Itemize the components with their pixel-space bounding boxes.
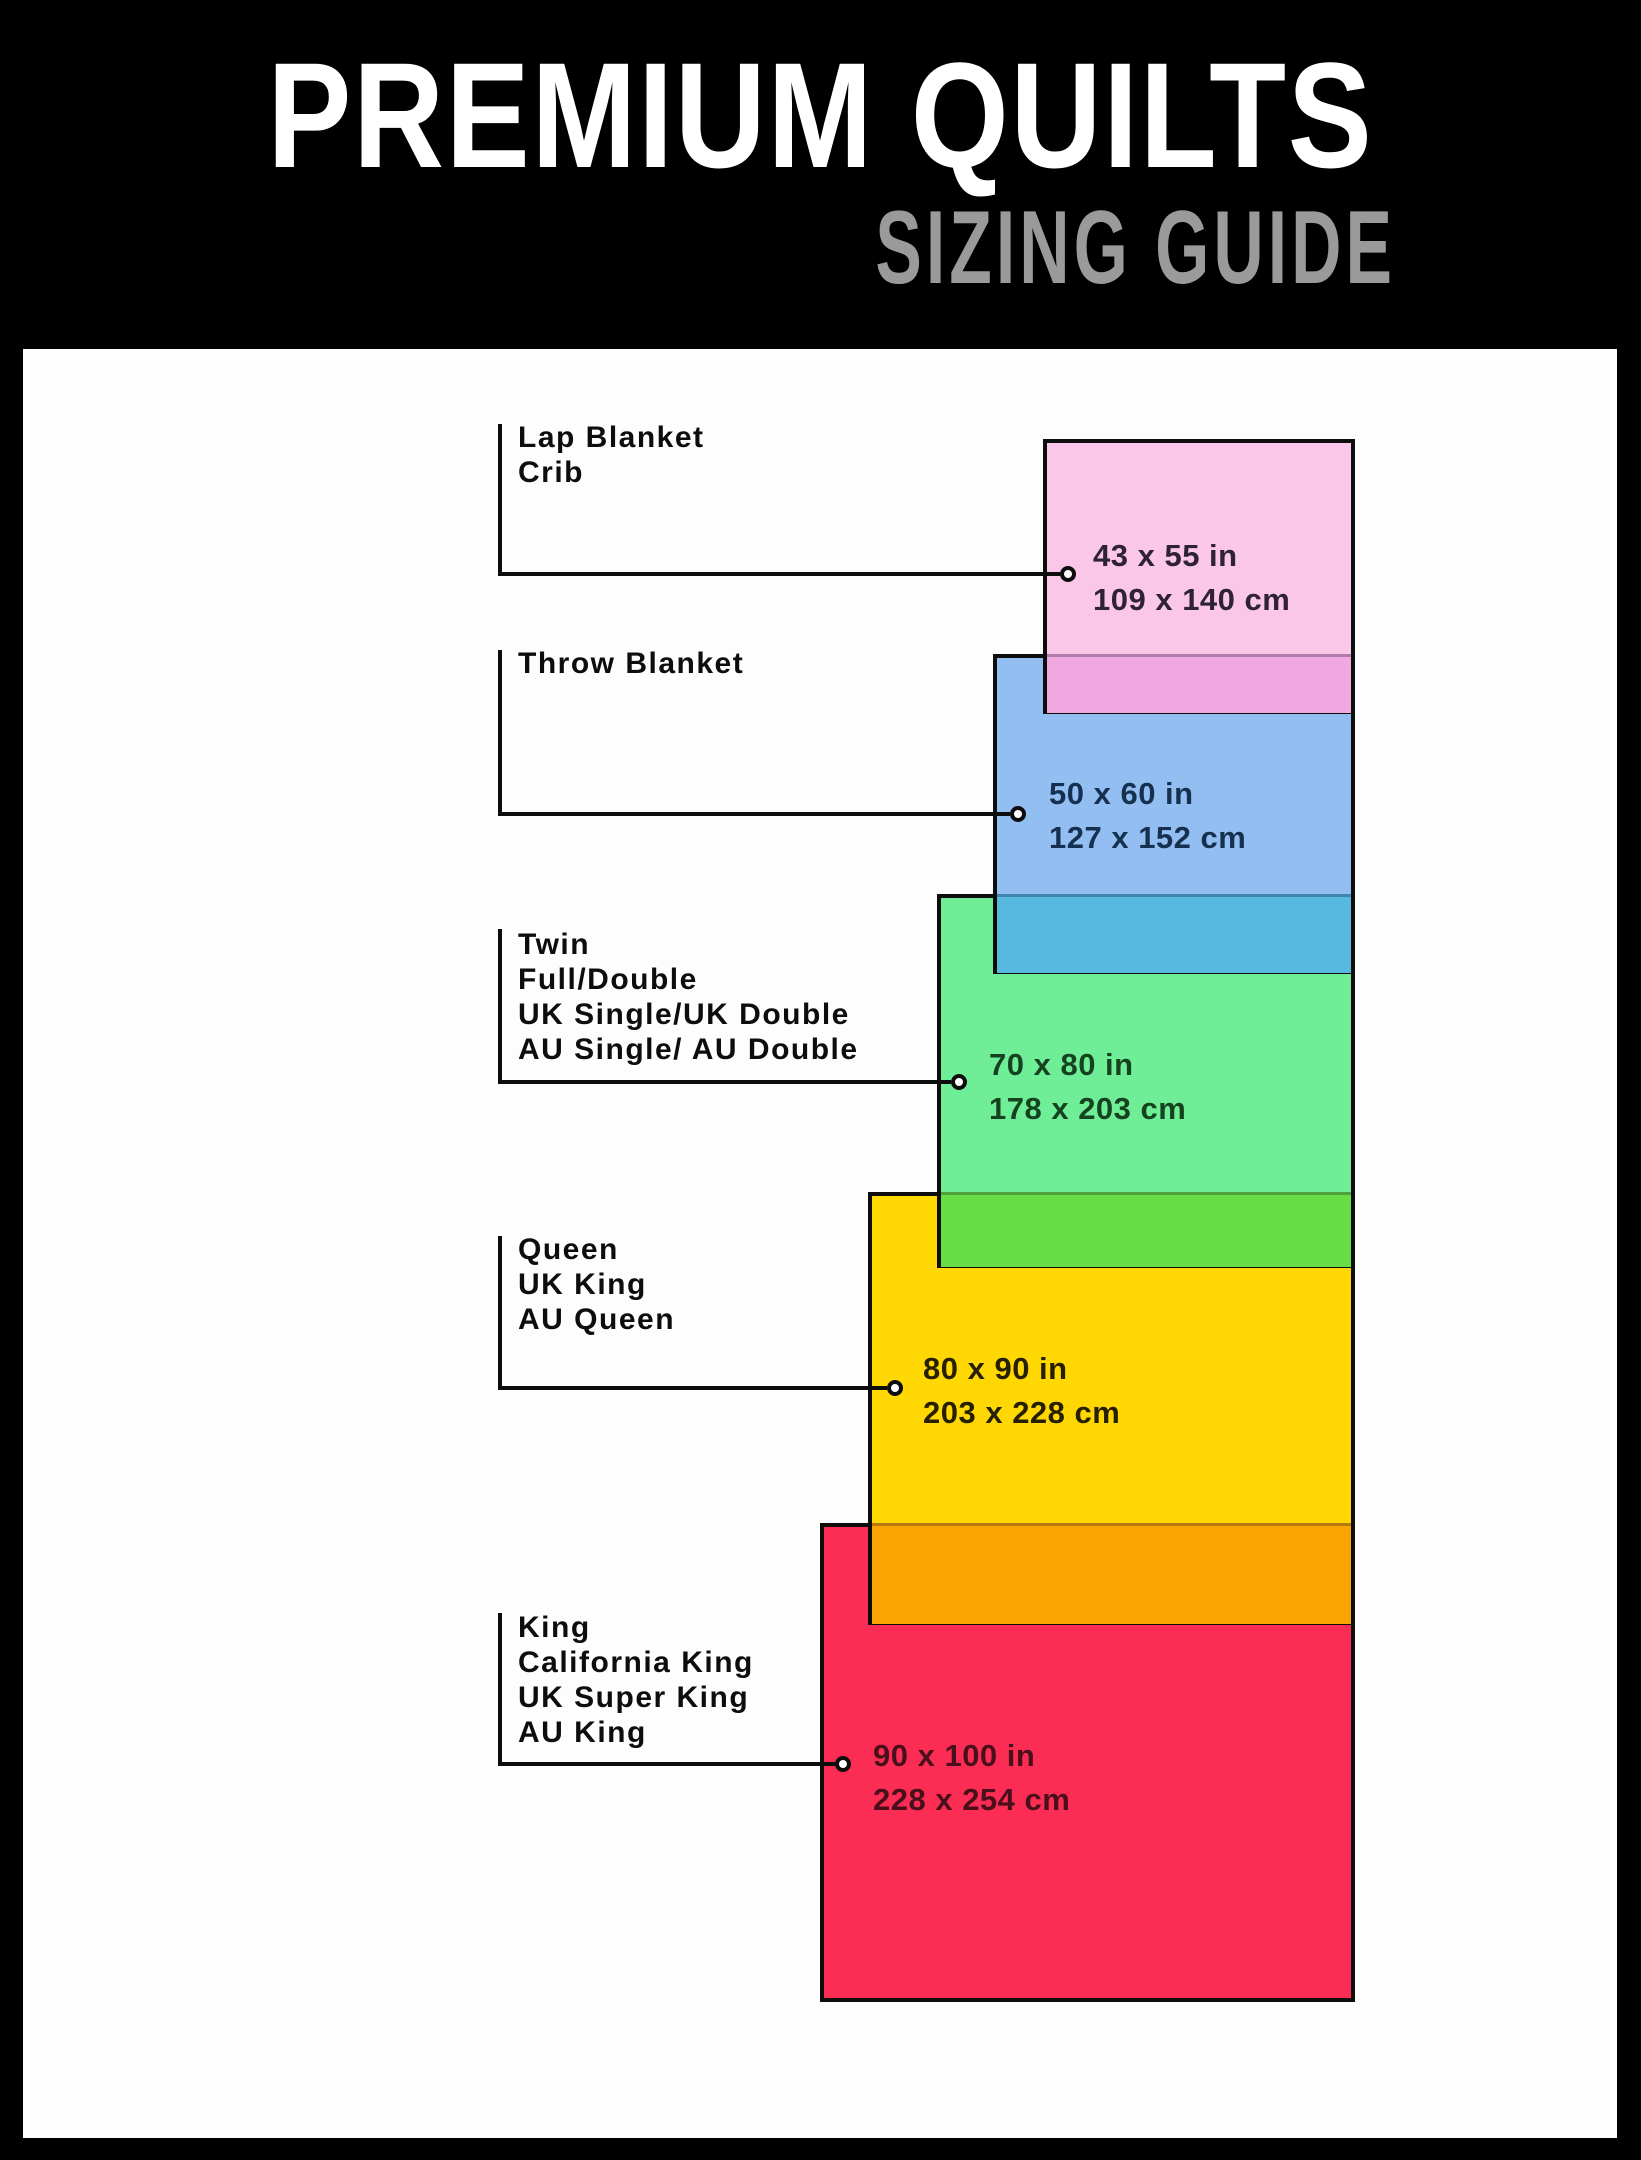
page-subtitle: SIZING GUIDE: [619, 196, 1396, 300]
connector-vline-lap: [498, 424, 502, 576]
connector-hline-twin: [498, 1080, 951, 1084]
dimensions-throw: 50 x 60 in 127 x 152 cm: [1049, 772, 1246, 860]
label-line: Queen: [518, 1232, 675, 1267]
size-labels-queen: Queen UK King AU Queen: [518, 1232, 675, 1337]
connector-vline-twin: [498, 929, 502, 1084]
overlap-band-queen-king: [872, 1523, 1351, 1624]
connector-hline-king: [498, 1762, 835, 1766]
header-band: PREMIUM QUILTS SIZING GUIDE: [0, 0, 1641, 349]
dimension-inches: 70 x 80 in: [989, 1043, 1186, 1087]
label-line: UK Single/UK Double: [518, 997, 859, 1032]
label-line: AU King: [518, 1715, 754, 1750]
dimensions-lap: 43 x 55 in 109 x 140 cm: [1093, 534, 1290, 622]
connector-dot-twin: [951, 1074, 967, 1090]
dimension-cm: 127 x 152 cm: [1049, 816, 1246, 860]
overlap-band-lap-throw: [1047, 654, 1351, 713]
size-labels-king: King California King UK Super King AU Ki…: [518, 1610, 754, 1750]
size-labels-lap: Lap Blanket Crib: [518, 420, 705, 490]
page-subtitle-text: SIZING GUIDE: [875, 196, 1396, 300]
connector-vline-throw: [498, 650, 502, 816]
connector-dot-king: [835, 1756, 851, 1772]
connector-vline-king: [498, 1613, 502, 1766]
label-line: Twin: [518, 927, 859, 962]
label-line: UK Super King: [518, 1680, 754, 1715]
dimension-cm: 178 x 203 cm: [989, 1087, 1186, 1131]
label-line: Crib: [518, 455, 705, 490]
connector-dot-lap: [1060, 566, 1076, 582]
label-line: California King: [518, 1645, 754, 1680]
label-line: Throw Blanket: [518, 646, 744, 681]
page-title: PREMIUM QUILTS: [0, 40, 1641, 190]
label-line: AU Queen: [518, 1302, 675, 1337]
connector-vline-queen: [498, 1236, 502, 1390]
connector-hline-throw: [498, 812, 1010, 816]
connector-dot-throw: [1010, 806, 1026, 822]
dimension-cm: 109 x 140 cm: [1093, 578, 1290, 622]
dimensions-king: 90 x 100 in 228 x 254 cm: [873, 1734, 1070, 1822]
page-title-text: PREMIUM QUILTS: [267, 40, 1373, 190]
connector-hline-queen: [498, 1386, 887, 1390]
label-line: UK King: [518, 1267, 675, 1302]
dimensions-queen: 80 x 90 in 203 x 228 cm: [923, 1347, 1120, 1435]
dimension-inches: 50 x 60 in: [1049, 772, 1246, 816]
dimension-inches: 80 x 90 in: [923, 1347, 1120, 1391]
dimension-cm: 228 x 254 cm: [873, 1778, 1070, 1822]
label-line: Lap Blanket: [518, 420, 705, 455]
dimension-inches: 43 x 55 in: [1093, 534, 1290, 578]
infographic-page: PREMIUM QUILTS SIZING GUIDE Lap Blanket …: [0, 0, 1641, 2160]
dimension-cm: 203 x 228 cm: [923, 1391, 1120, 1435]
overlap-band-twin-queen: [941, 1192, 1351, 1267]
size-labels-throw: Throw Blanket: [518, 646, 744, 681]
label-line: King: [518, 1610, 754, 1645]
dimension-inches: 90 x 100 in: [873, 1734, 1070, 1778]
label-line: AU Single/ AU Double: [518, 1032, 859, 1067]
label-line: Full/Double: [518, 962, 859, 997]
overlap-band-throw-twin: [997, 894, 1351, 973]
connector-hline-lap: [498, 572, 1060, 576]
connector-dot-queen: [887, 1380, 903, 1396]
size-labels-twin: Twin Full/Double UK Single/UK Double AU …: [518, 927, 859, 1067]
dimensions-twin: 70 x 80 in 178 x 203 cm: [989, 1043, 1186, 1131]
